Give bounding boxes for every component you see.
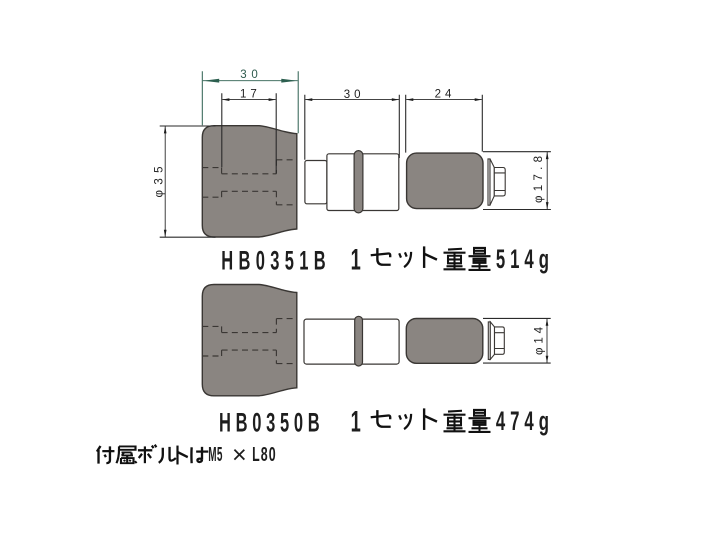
svg-text:M5: M5 xyxy=(208,444,223,466)
svg-text:474g: 474g xyxy=(496,406,554,436)
svg-text:30: 30 xyxy=(344,89,365,101)
svg-text:×: × xyxy=(232,441,247,469)
svg-text:φ35: φ35 xyxy=(153,167,165,198)
svg-text:1: 1 xyxy=(351,406,361,438)
svg-text:φ14: φ14 xyxy=(534,326,546,355)
svg-text:514g: 514g xyxy=(496,244,554,274)
svg-text:φ17.8: φ17.8 xyxy=(533,156,545,203)
svg-text:1: 1 xyxy=(351,244,361,276)
svg-text:HB0350B: HB0350B xyxy=(219,407,324,437)
svg-text:HB0351B: HB0351B xyxy=(221,245,331,275)
svg-text:L80: L80 xyxy=(252,443,277,466)
svg-text:17: 17 xyxy=(240,89,261,101)
svg-text:30: 30 xyxy=(240,69,262,81)
svg-text:24: 24 xyxy=(435,89,456,101)
